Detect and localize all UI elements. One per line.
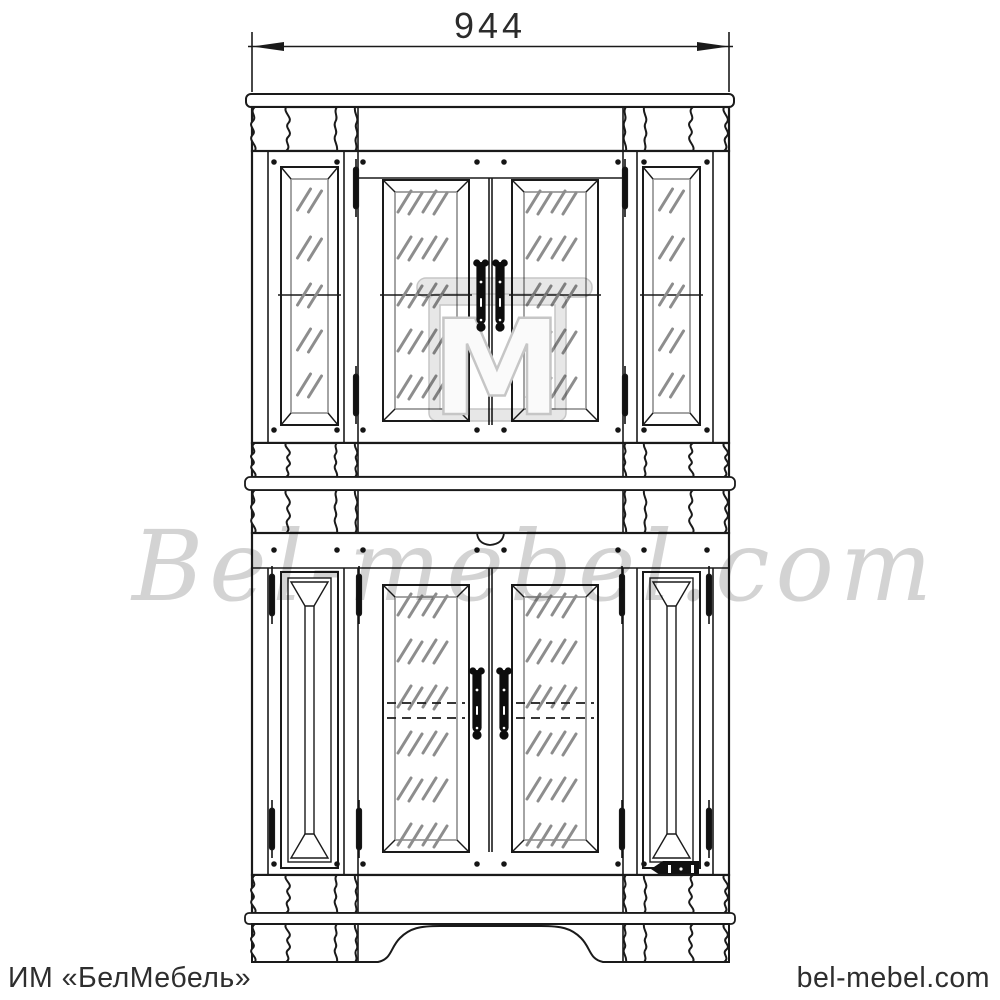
manufacturer-label: ИМ «БелМебель» (8, 961, 251, 995)
arrowhead-right-icon (697, 42, 729, 51)
watermark-script-text: Bel-mebel.com (130, 510, 938, 623)
cornice (246, 94, 734, 151)
furniture-drawing-page: 944 (0, 0, 1000, 1000)
arrowhead-left-icon (252, 42, 284, 51)
apron-with-cutout (252, 924, 729, 962)
dimension-annotation: 944 (248, 5, 733, 92)
website-label: bel-mebel.com (797, 961, 990, 995)
cabinet-technical-drawing: 944 (0, 0, 1000, 1000)
base-plinth (245, 875, 735, 962)
dimension-value: 944 (454, 5, 526, 46)
